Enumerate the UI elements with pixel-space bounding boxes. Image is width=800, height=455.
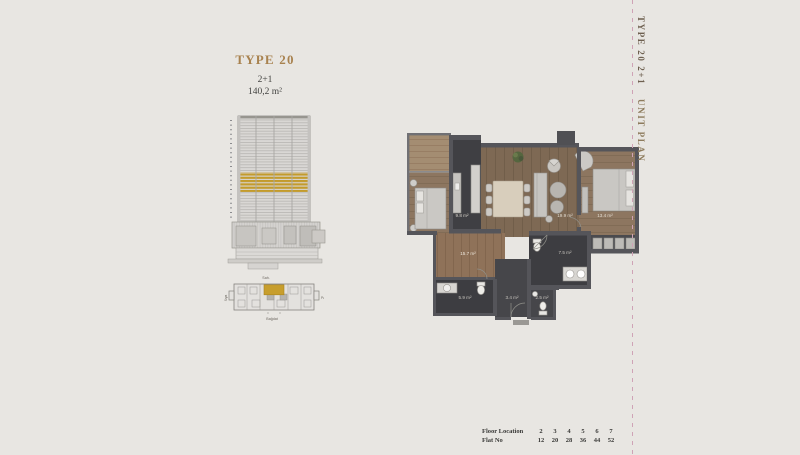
sink <box>566 270 574 278</box>
podium <box>228 222 325 269</box>
coffee-table <box>550 182 566 198</box>
highlighted-unit <box>264 285 284 295</box>
key-plan-label-left: Srya <box>224 295 228 302</box>
row-label: Flat No <box>482 436 534 445</box>
unit-plan-page: TYPE 20 2+1 140,2 m² <box>0 0 800 455</box>
dashed-divider-line <box>632 0 633 455</box>
flat-value: 52 <box>604 436 618 445</box>
key-plan-outline <box>229 284 319 314</box>
terrace-floor <box>409 135 450 173</box>
toilet <box>477 285 484 294</box>
unit-config: 2+1 <box>205 75 325 85</box>
floor-value: 6 <box>590 427 604 436</box>
sink <box>443 284 450 291</box>
side-label-unitplan: UNIT PLAN <box>636 99 646 163</box>
unit-area: 140,2 m² <box>205 87 325 97</box>
toilet <box>540 302 546 310</box>
room-area-label: 19.9 m² <box>557 213 573 218</box>
table-row: Flat No 12 20 28 36 44 52 <box>482 436 618 445</box>
room-area-label: 9.8 m² <box>455 213 468 218</box>
entrance-step <box>513 320 529 325</box>
key-plan-label-bottom: Bağdat <box>266 317 277 321</box>
dining-table <box>493 181 523 217</box>
floor-location-table: Floor Location 2 3 4 5 6 7 Flat No 12 20… <box>482 427 618 445</box>
dresser <box>582 187 588 213</box>
floor-plan: 9.8 m² 19.9 m² 13.4 m² 15.7 m² 5.9 m² 3.… <box>405 127 640 327</box>
room-area-label: 15.7 m² <box>460 251 476 256</box>
floor-value: 3 <box>548 427 562 436</box>
room-area-label: 7.5 m² <box>558 250 571 255</box>
kitchen-island <box>471 165 480 213</box>
key-plan-label-right: Palm <box>321 296 324 300</box>
room-area-label: 2.5 m² <box>535 295 548 300</box>
key-plan: Sah. Bağdat Palm Srya <box>224 272 324 326</box>
flat-value: 28 <box>562 436 576 445</box>
kitchen-counter <box>453 173 461 213</box>
row-label: Floor Location <box>482 427 534 436</box>
flat-value: 12 <box>534 436 548 445</box>
sink <box>577 270 585 278</box>
floor-value: 4 <box>562 427 576 436</box>
side-label-type: TYPE 20 2+1 <box>636 16 646 85</box>
page-title: TYPE 20 <box>205 52 325 68</box>
title-block: TYPE 20 2+1 140,2 m² <box>205 52 325 97</box>
flat-value: 36 <box>576 436 590 445</box>
table-row: Floor Location 2 3 4 5 6 7 <box>482 427 618 436</box>
key-plan-label-top: Sah. <box>262 276 269 280</box>
room-area-label: 13.4 m² <box>597 213 613 218</box>
floor-value: 5 <box>576 427 590 436</box>
flat-value: 44 <box>590 436 604 445</box>
floor-value: 7 <box>604 427 618 436</box>
building-elevation <box>226 114 326 272</box>
room-area-label: 3.4 m² <box>505 295 518 300</box>
sofa <box>534 173 547 217</box>
side-vertical-label: TYPE 20 2+1 UNIT PLAN <box>636 16 646 176</box>
tower <box>238 116 310 222</box>
room-area-label: 5.9 m² <box>458 295 471 300</box>
flat-value: 20 <box>548 436 562 445</box>
plant <box>513 152 524 163</box>
floor-value: 2 <box>534 427 548 436</box>
hall-floor <box>433 233 505 279</box>
